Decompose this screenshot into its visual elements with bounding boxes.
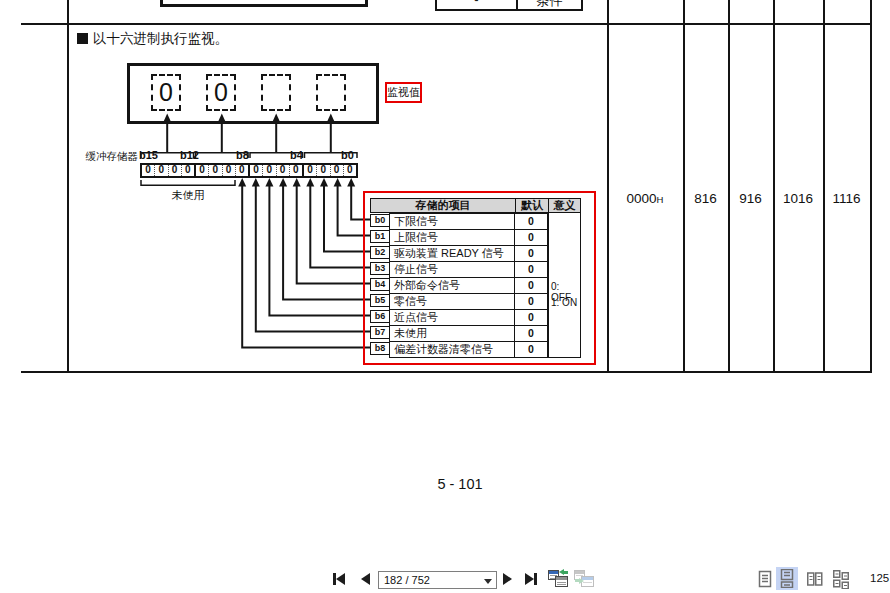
signal-name: 驱动装置 READY 信号 [389,245,515,262]
square-bullet-icon [77,33,88,44]
djvu-viewer-window: - 条件 以十六进制执行监视。 0 0 监视值 缓冲存储器 b15 b12 b8… [0,0,890,593]
monitor-digit-box [316,74,346,111]
view-forward-button-disabled [574,570,595,588]
sheet-header [556,577,567,580]
bit-tab: b7 [370,326,390,339]
unused-bits-label: 未使用 [141,188,235,203]
bit-cell: 0 [182,165,196,176]
default-hex-value: 0000 [627,191,657,206]
bit-cell: 0 [223,165,236,176]
bit-position-label: b15 [139,149,158,161]
bit-tab: b1 [370,230,390,243]
sheet-line [583,582,592,583]
bit-cell: 0 [263,165,276,176]
first-page-button[interactable] [333,572,345,586]
bit-tab: b3 [370,262,390,275]
page-number: 5 - 101 [410,476,510,492]
facing-pages-icon [807,570,823,589]
bit-tab: b2 [370,246,390,259]
address-cell: 916 [728,190,773,208]
next-page-arrow-icon [503,573,512,585]
meaning-cell: 0: OFF 1: ON [548,212,581,358]
default-value: 0 [514,277,548,294]
header-item: 存储的项目 [370,198,516,213]
next-page-button[interactable] [503,572,512,586]
stored-items-table: 存储的项目 默认值 意义 b0 下限信号 0 b1 上限信号 0 b2 驱动装置… [363,191,596,365]
default-value: 0 [514,245,548,262]
bit-tab: b6 [370,310,390,323]
signal-name: 停止信号 [389,261,515,278]
column-divider [607,0,609,373]
signal-name: 下限信号 [389,213,515,230]
bit-cell: 0 [317,165,330,176]
single-page-icon [758,570,773,589]
continuous-page-icon [780,569,795,588]
monitor-digit-box [261,74,291,111]
partial-cell-text: 条件 [518,0,581,10]
monitor-digit-box: 0 [151,74,181,111]
last-page-bar-icon [534,573,537,585]
default-value: 0 [514,213,548,230]
bit-cell: 0 [250,165,263,176]
layout-continuous-button[interactable] [776,567,798,590]
continuous-facing-icon [833,570,850,589]
signal-name: 近点信号 [389,309,515,326]
green-back-arrow-stem [564,571,568,574]
monitor-digit: 0 [214,78,228,106]
meaning-on: 1: ON [551,297,577,308]
page-number-combobox[interactable]: 182 / 752 [378,571,497,589]
bit-position-label: b4 [290,149,303,161]
layout-single-page-button[interactable] [758,570,773,593]
default-value: 0 [514,261,548,278]
monitor-digit: 0 [159,78,173,106]
sheet-line [557,582,566,583]
column-divider [823,0,825,373]
monitor-value-label: 监视值 [387,86,420,98]
signal-name: 零信号 [389,293,515,310]
row-divider-bottom [21,371,872,373]
bit-tab: b5 [370,294,390,307]
signal-name: 外部命令信号 [389,277,515,294]
last-page-arrow-icon [525,573,534,585]
bit-cell: 0 [290,165,304,176]
bit-cell: 0 [331,165,344,176]
header-meaning: 意义 [548,198,581,213]
sheet-icon [555,576,568,587]
section-heading: 以十六进制执行监视。 [77,30,228,48]
bit-tab: b0 [370,214,390,227]
bit-cell: 0 [277,165,290,176]
hex-suffix: H [657,194,664,205]
address-cell: 1116 [823,190,870,208]
bit-cell: 0 [142,165,155,176]
sheet-header [549,571,558,574]
bit-position-label: b0 [341,149,354,161]
table-header-row: 存储的项目 默认值 意义 [370,198,585,213]
bit-cell: 0 [236,165,250,176]
layout-continuous-facing-button[interactable] [833,570,850,593]
bit-cell: 0 [169,165,182,176]
address-cell: 1016 [773,190,823,208]
partial-cell-text: - [437,0,516,7]
previous-table-cell: - [435,0,518,11]
signal-name: 未使用 [389,325,515,342]
column-divider [683,0,685,373]
row-divider-top [21,23,872,25]
bit-cell: 0 [196,165,209,176]
column-divider [773,0,775,373]
bit-position-label: b8 [236,149,249,161]
sheet-line [557,584,566,585]
default-value-cell: 0000H [607,190,683,208]
table-border-left [67,0,69,373]
column-divider [728,0,730,373]
default-value: 0 [514,325,548,342]
sheet-header [575,571,584,574]
previous-table-cell: 条件 [516,0,583,11]
pale-forward-arrow-icon [579,578,584,584]
bit-cell: 0 [209,165,222,176]
layout-facing-pages-button[interactable] [807,570,823,593]
page-indicator: 182 / 752 [384,573,430,588]
previous-page-arrow-icon [361,573,370,585]
view-back-button[interactable] [548,570,569,588]
first-page-arrow-icon [336,573,345,585]
bit-cell: 0 [344,165,356,176]
buffer-bit-register: 0 0 0 0 0 0 0 0 0 0 0 0 0 0 0 0 [140,163,358,178]
bit-tab: b4 [370,278,390,291]
header-default: 默认值 [515,198,549,213]
dropdown-arrow-icon[interactable] [484,579,492,584]
bit-tab: b8 [370,342,390,355]
default-value: 0 [514,293,548,310]
table-border-right [870,0,872,373]
bit-position-label: b12 [180,149,199,161]
signal-name: 偏差计数器清零信号 [389,341,515,358]
section-title: 以十六进制执行监视。 [93,30,228,48]
previous-diagram-remnant [160,0,368,7]
previous-page-button[interactable] [361,572,370,586]
address-cell: 816 [683,190,728,208]
zoom-level-value[interactable]: 125 [870,572,890,584]
buffer-memory-label: 缓冲存储器 [78,150,138,164]
last-page-button[interactable] [525,572,537,586]
bit-cell: 0 [155,165,168,176]
monitor-digit-box: 0 [206,74,236,111]
signal-name: 上限信号 [389,229,515,246]
default-value: 0 [514,309,548,326]
bit-cell: 0 [304,165,317,176]
monitor-value-callout: 监视值 [385,82,422,103]
default-value: 0 [514,341,548,358]
default-value: 0 [514,229,548,246]
